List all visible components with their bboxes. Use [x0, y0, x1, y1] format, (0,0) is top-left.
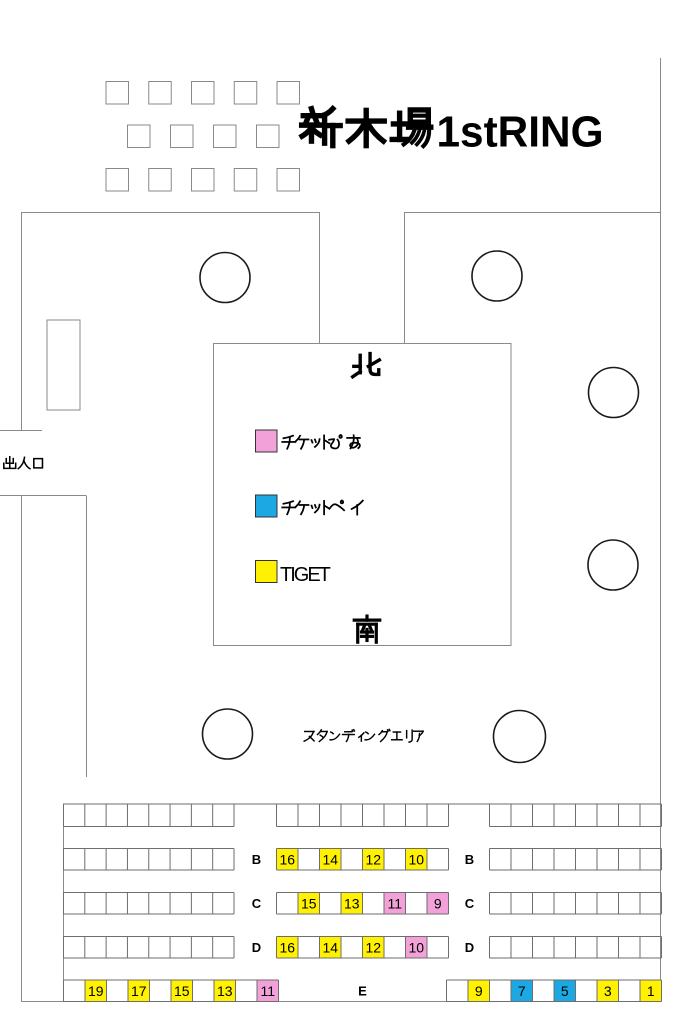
svg-text:1stRING: 1stRING [437, 109, 604, 157]
svg-text:14: 14 [322, 851, 338, 867]
svg-text:1: 1 [647, 983, 655, 999]
svg-text:9: 9 [475, 983, 483, 999]
svg-text:10: 10 [408, 939, 424, 955]
svg-text:D: D [465, 940, 474, 955]
svg-text:12: 12 [365, 851, 381, 867]
svg-text:B: B [252, 852, 261, 867]
svg-text:12: 12 [365, 939, 381, 955]
svg-text:TIGET: TIGET [280, 564, 331, 586]
svg-text:5: 5 [561, 983, 569, 999]
svg-text:13: 13 [217, 983, 233, 999]
svg-text:C: C [465, 896, 475, 911]
svg-text:15: 15 [174, 983, 190, 999]
svg-text:11: 11 [387, 895, 402, 911]
svg-text:7: 7 [518, 983, 526, 999]
svg-text:16: 16 [279, 851, 295, 867]
svg-text:15: 15 [301, 895, 317, 911]
svg-text:17: 17 [131, 983, 147, 999]
svg-text:14: 14 [322, 939, 338, 955]
svg-text:10: 10 [408, 851, 424, 867]
svg-text:11: 11 [260, 983, 275, 999]
svg-text:E: E [358, 983, 367, 998]
svg-text:C: C [252, 896, 262, 911]
svg-text:19: 19 [88, 983, 104, 999]
svg-text:D: D [252, 940, 261, 955]
svg-text:9: 9 [434, 895, 442, 911]
svg-text:13: 13 [344, 895, 360, 911]
svg-text:16: 16 [279, 939, 295, 955]
svg-text:3: 3 [604, 983, 612, 999]
svg-text:B: B [465, 852, 474, 867]
